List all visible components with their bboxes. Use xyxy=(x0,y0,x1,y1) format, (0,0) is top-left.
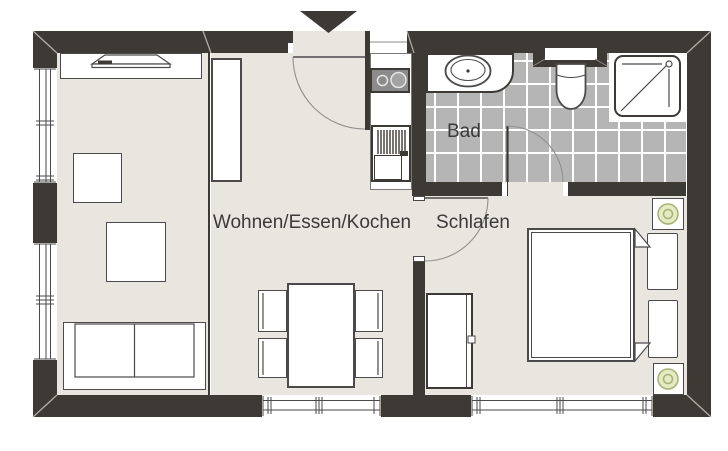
dining-chair-3 xyxy=(355,290,383,332)
bedroom-door-jamb-top xyxy=(413,196,425,201)
wall-top-left xyxy=(33,31,293,53)
dining-chair-1 xyxy=(258,290,287,332)
window-bottom-living xyxy=(262,395,381,417)
sofa xyxy=(63,322,206,390)
plant-stool-1 xyxy=(652,198,684,230)
cooktop xyxy=(370,68,410,93)
wall-bathroom-left xyxy=(412,31,426,196)
window-left-lower xyxy=(33,243,57,360)
side-table xyxy=(73,153,122,203)
wall-bottom-middle xyxy=(381,395,471,417)
window-bottom-bedroom xyxy=(471,395,653,417)
washbasin-counter xyxy=(426,53,514,93)
coffee-table xyxy=(106,222,166,282)
niche-window xyxy=(545,48,597,60)
bedroom-door-jamb-bottom xyxy=(413,256,425,262)
dining-chair-2 xyxy=(258,338,287,378)
room-label-living: Wohnen/Essen/Kochen xyxy=(211,213,413,233)
bath-door-jamb-right xyxy=(563,182,568,196)
tall-cabinet xyxy=(211,58,242,182)
wall-left-middle xyxy=(33,183,57,243)
wardrobe xyxy=(426,293,473,389)
dining-chair-4 xyxy=(355,338,383,378)
entrance-triangle-icon xyxy=(300,11,357,33)
wall-right xyxy=(687,53,711,395)
partition-left-room xyxy=(208,53,210,395)
pillow-2 xyxy=(648,300,678,358)
wall-left-upper xyxy=(33,53,57,68)
floorplan: Wohnen/Essen/Kochen Bad Schlafen xyxy=(0,0,728,451)
kitchen-sink-basin xyxy=(374,155,402,180)
wall-bathroom-bottom-right xyxy=(563,182,686,196)
wall-bottom-left xyxy=(33,395,262,417)
wall-bathroom-bottom-left xyxy=(412,182,508,196)
room-label-bath: Bad xyxy=(447,122,481,142)
floor-entrance-opening xyxy=(293,31,365,55)
entrance-door-jamb xyxy=(288,43,293,53)
room-label-bedroom: Schlafen xyxy=(423,213,523,233)
bath-door-jamb-left xyxy=(502,182,507,196)
wall-bottom-right xyxy=(653,395,711,417)
floor-bath-doorway xyxy=(508,182,563,196)
window-left-upper xyxy=(33,68,57,183)
plant-stool-2 xyxy=(653,363,684,395)
pillow-1 xyxy=(647,233,678,290)
tv-sideboard xyxy=(60,53,202,79)
bed-mattress-inner xyxy=(531,232,631,358)
shower-tray xyxy=(614,55,681,117)
window-kitchen xyxy=(370,31,407,53)
wall-bedroom-partition xyxy=(413,262,425,395)
dining-table xyxy=(287,283,355,388)
